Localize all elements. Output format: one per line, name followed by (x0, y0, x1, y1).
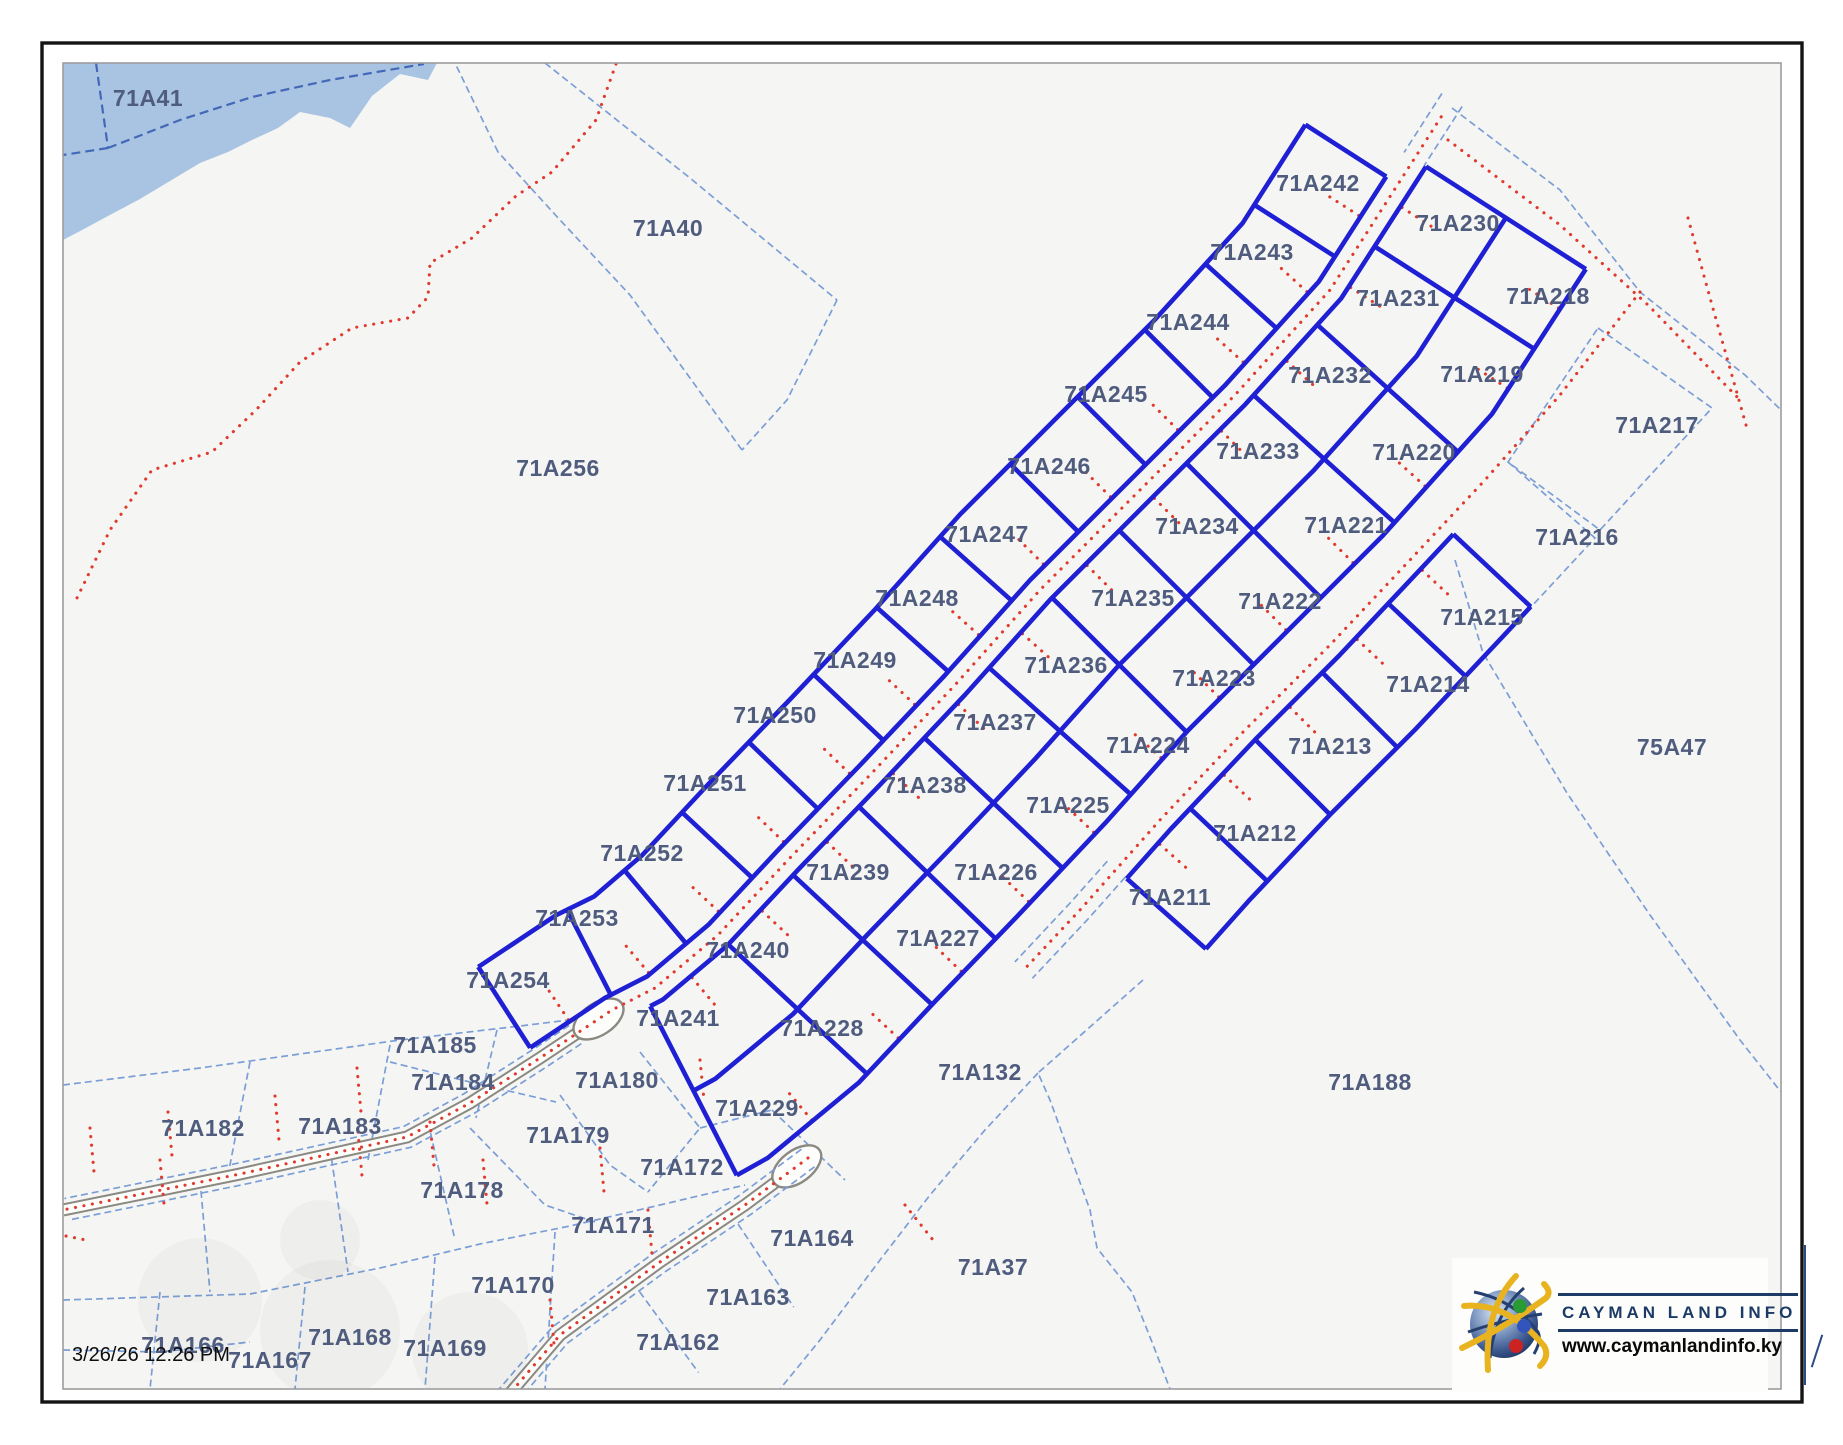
parcel-label-71A222: 71A222 (1238, 588, 1322, 614)
parcel-label-71A227: 71A227 (896, 925, 980, 951)
parcel-label-71A249: 71A249 (813, 647, 897, 673)
parcel-label-71A230: 71A230 (1416, 210, 1500, 236)
parcel-label-71A234: 71A234 (1155, 513, 1239, 539)
parcel-label-71A218: 71A218 (1506, 283, 1590, 309)
globe-icon (1454, 1262, 1558, 1388)
parcel-label-71A237: 71A237 (953, 709, 1037, 735)
parcel-label-71A252: 71A252 (600, 840, 684, 866)
parcel-label-71A235: 71A235 (1091, 585, 1175, 611)
cadastral-map[interactable]: 71A24271A24371A24471A24571A24671A24771A2… (0, 0, 1843, 1445)
parcel-label-71A239: 71A239 (806, 859, 890, 885)
parcel-label-71A248: 71A248 (875, 585, 959, 611)
parcel-label-71A182: 71A182 (161, 1115, 245, 1141)
parcel-label-71A163: 71A163 (706, 1284, 790, 1310)
parcel-label-71A172: 71A172 (640, 1154, 724, 1180)
parcel-label-71A216: 71A216 (1535, 524, 1619, 550)
parcel-label-71A240: 71A240 (706, 937, 790, 963)
parcel-label-71A213: 71A213 (1288, 733, 1372, 759)
parcel-label-71A41: 71A41 (113, 85, 183, 111)
parcel-label-71A250: 71A250 (733, 702, 817, 728)
parcel-label-71A256: 71A256 (516, 455, 600, 481)
parcel-label-71A242: 71A242 (1276, 170, 1360, 196)
parcel-label-71A221: 71A221 (1304, 512, 1388, 538)
parcel-label-71A188: 71A188 (1328, 1069, 1412, 1095)
map-viewport[interactable]: 71A24271A24371A24471A24571A24671A24771A2… (0, 0, 1843, 1445)
parcel-label-71A168: 71A168 (308, 1324, 392, 1350)
parcel-label-71A185: 71A185 (393, 1032, 477, 1058)
parcel-label-71A219: 71A219 (1440, 361, 1524, 387)
parcel-label-71A170: 71A170 (471, 1272, 555, 1298)
timestamp: 3/26/26 12:26 PM (72, 1344, 230, 1367)
parcel-label-71A246: 71A246 (1007, 453, 1091, 479)
parcel-label-71A37: 71A37 (958, 1254, 1028, 1280)
parcel-label-71A180: 71A180 (575, 1067, 659, 1093)
parcel-label-71A132: 71A132 (938, 1059, 1022, 1085)
parcel-label-71A40: 71A40 (633, 215, 703, 241)
parcel-label-71A179: 71A179 (526, 1122, 610, 1148)
parcel-label-71A245: 71A245 (1064, 381, 1148, 407)
logo-divider-line (1804, 1245, 1806, 1385)
parcel-label-71A232: 71A232 (1288, 362, 1372, 388)
parcel-label-71A231: 71A231 (1356, 285, 1440, 311)
parcel-label-71A162: 71A162 (636, 1329, 720, 1355)
parcel-label-71A214: 71A214 (1386, 671, 1470, 697)
parcel-label-71A233: 71A233 (1216, 438, 1300, 464)
parcel-label-71A183: 71A183 (298, 1113, 382, 1139)
parcel-label-71A243: 71A243 (1210, 239, 1294, 265)
parcel-label-71A229: 71A229 (715, 1095, 799, 1121)
cayman-land-info-logo: CAYMAN LAND INFO www.caymanlandinfo.ky (1452, 1258, 1768, 1392)
parcel-label-71A226: 71A226 (954, 859, 1038, 885)
parcel-label-71A211: 71A211 (1129, 884, 1211, 910)
parcel-label-71A236: 71A236 (1024, 652, 1108, 678)
parcel-label-71A167: 71A167 (228, 1347, 312, 1373)
parcel-label-71A171: 71A171 (571, 1212, 655, 1238)
parcel-label-71A251: 71A251 (663, 770, 747, 796)
parcel-label-71A224: 71A224 (1106, 732, 1190, 758)
parcel-label-71A228: 71A228 (780, 1015, 864, 1041)
parcel-label-71A217: 71A217 (1615, 412, 1699, 438)
parcel-label-71A220: 71A220 (1372, 439, 1456, 465)
parcel-label-71A184: 71A184 (411, 1069, 495, 1095)
parcel-label-71A223: 71A223 (1172, 665, 1256, 691)
parcel-label-71A238: 71A238 (883, 772, 967, 798)
parcel-label-71A254: 71A254 (466, 967, 550, 993)
parcel-label-71A215: 71A215 (1440, 604, 1524, 630)
logo-title: CAYMAN LAND INFO (1558, 1293, 1798, 1332)
parcel-label-71A244: 71A244 (1146, 309, 1230, 335)
parcel-label-75A47: 75A47 (1637, 734, 1707, 760)
parcel-label-71A225: 71A225 (1026, 792, 1110, 818)
parcel-label-71A241: 71A241 (636, 1005, 720, 1031)
parcel-label-71A212: 71A212 (1213, 820, 1297, 846)
logo-url: www.caymanlandinfo.ky (1558, 1332, 1798, 1358)
parcel-label-71A247: 71A247 (945, 521, 1029, 547)
parcel-label-71A253: 71A253 (535, 905, 619, 931)
parcel-label-71A169: 71A169 (403, 1335, 487, 1361)
parcel-label-71A178: 71A178 (420, 1177, 504, 1203)
parcel-label-71A164: 71A164 (770, 1225, 854, 1251)
